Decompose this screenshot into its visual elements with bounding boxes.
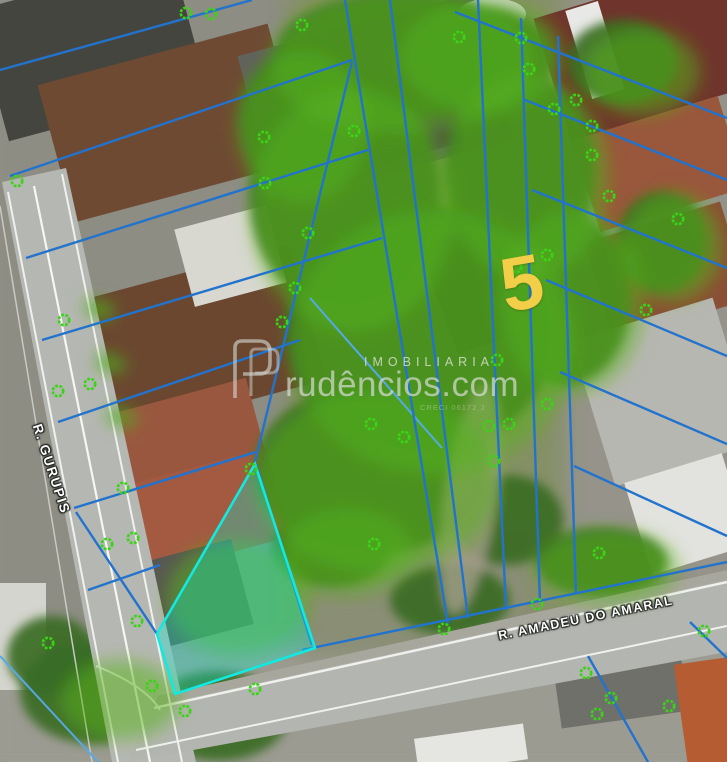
map-canvas (0, 0, 727, 762)
vegetation-overlay-blob (500, 210, 644, 394)
aerial-map: R. GURUPIS R. AMADEU DO AMARAL 5 IMOBILI… (0, 0, 727, 762)
vegetation-overlay-blob (60, 660, 180, 740)
vegetation-overlay-blob (535, 529, 679, 605)
vegetation-overlay-blob (584, 28, 700, 116)
